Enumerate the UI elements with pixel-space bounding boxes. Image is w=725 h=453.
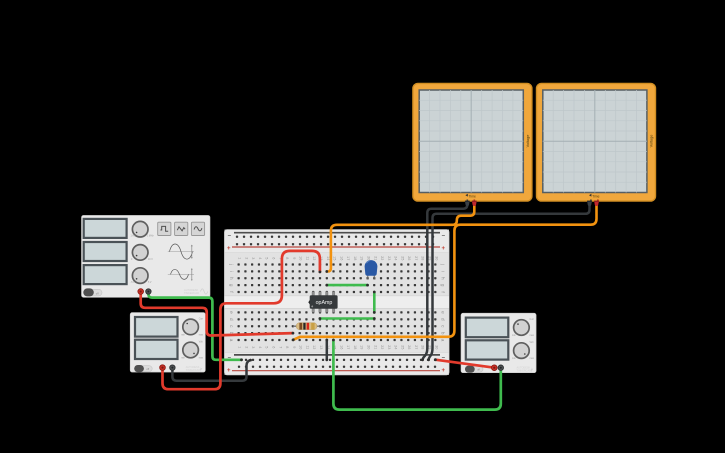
svg-text:e: e	[228, 311, 233, 314]
svg-text:16: 16	[339, 256, 343, 260]
svg-text:26: 26	[407, 345, 411, 349]
svg-text:15: 15	[333, 256, 337, 260]
svg-text:4: 4	[258, 346, 262, 348]
svg-text:g: g	[439, 284, 444, 287]
svg-text:b: b	[439, 332, 445, 335]
svg-text:1: 1	[238, 346, 242, 348]
svg-text:j: j	[439, 263, 445, 265]
svg-text:TINKERCAD: TINKERCAD	[186, 369, 201, 372]
svg-text:27: 27	[414, 345, 418, 349]
svg-text:5 V: 5 V	[148, 282, 152, 284]
svg-text:30: 30	[434, 345, 438, 349]
svg-text:1: 1	[238, 257, 242, 259]
svg-text:5: 5	[265, 257, 269, 259]
svg-text:16: 16	[339, 345, 343, 349]
svg-text:opAmp: opAmp	[316, 300, 333, 306]
svg-text:25: 25	[400, 345, 404, 349]
svg-text:1 MHz: 1 MHz	[147, 236, 154, 238]
svg-text:Time: Time	[469, 195, 477, 199]
svg-text:Voltage: Voltage	[526, 135, 530, 148]
svg-text:23: 23	[387, 345, 391, 349]
svg-text:20: 20	[367, 345, 371, 349]
svg-text:3: 3	[251, 257, 255, 259]
svg-text:27: 27	[414, 256, 418, 260]
svg-text:18: 18	[353, 345, 357, 349]
svg-text:2: 2	[244, 346, 248, 348]
svg-text:24: 24	[394, 256, 398, 260]
svg-text:e: e	[439, 311, 444, 314]
svg-text:d: d	[228, 318, 234, 321]
svg-text:30: 30	[434, 256, 438, 260]
svg-text:18: 18	[353, 256, 357, 260]
svg-text:14: 14	[326, 256, 330, 260]
svg-text:a: a	[439, 339, 444, 342]
svg-text:12: 12	[312, 345, 316, 349]
svg-text:+: +	[442, 368, 446, 374]
svg-text:−: −	[442, 233, 446, 239]
svg-text:17: 17	[346, 256, 350, 260]
svg-text:7: 7	[278, 346, 282, 348]
svg-text:Time: Time	[592, 195, 600, 199]
svg-text:h: h	[439, 277, 445, 280]
svg-text:off: off	[96, 291, 99, 295]
svg-text:Volt: Volt	[530, 341, 534, 344]
svg-text:28: 28	[421, 345, 425, 349]
svg-text:off: off	[146, 368, 149, 371]
svg-text:9: 9	[292, 257, 296, 259]
svg-text:-5 V: -5 V	[131, 282, 136, 284]
svg-text:5: 5	[265, 346, 269, 348]
svg-text:4: 4	[258, 257, 262, 259]
svg-text:g: g	[228, 284, 233, 287]
svg-text:−: −	[228, 233, 232, 239]
svg-text:Volt: Volt	[199, 341, 203, 344]
svg-text:21: 21	[373, 345, 377, 349]
svg-text:+: +	[227, 246, 231, 252]
svg-text:26: 26	[407, 256, 411, 260]
svg-text:i: i	[228, 271, 234, 272]
svg-text:h: h	[228, 277, 234, 280]
svg-text:off: off	[477, 369, 480, 372]
svg-text:19: 19	[360, 256, 364, 260]
svg-text:i: i	[439, 271, 445, 272]
svg-text:Curr: Curr	[530, 318, 535, 321]
svg-text:6: 6	[272, 257, 276, 259]
svg-text:22: 22	[380, 256, 384, 260]
svg-text:Curr: Curr	[199, 318, 204, 321]
svg-text:12: 12	[312, 256, 316, 260]
svg-text:+: +	[442, 246, 446, 252]
svg-text:21: 21	[373, 256, 377, 260]
svg-text:Voltage: Voltage	[649, 135, 653, 148]
svg-text:+: +	[227, 368, 231, 374]
svg-text:10: 10	[299, 345, 303, 349]
svg-text:19: 19	[360, 345, 364, 349]
svg-text:TINKERCAD: TINKERCAD	[517, 370, 532, 373]
svg-text:10 V: 10 V	[148, 259, 153, 261]
svg-text:j: j	[228, 263, 234, 265]
svg-text:13: 13	[319, 345, 323, 349]
svg-text:11: 11	[305, 256, 309, 260]
svg-text:28: 28	[421, 256, 425, 260]
svg-text:20: 20	[367, 256, 371, 260]
svg-text:17: 17	[346, 345, 350, 349]
svg-text:23: 23	[387, 256, 391, 260]
svg-text:11: 11	[305, 345, 309, 349]
svg-text:6: 6	[272, 346, 276, 348]
svg-text:10: 10	[299, 256, 303, 260]
svg-text:d: d	[439, 318, 445, 321]
svg-text:a: a	[228, 339, 233, 342]
svg-text:24: 24	[394, 345, 398, 349]
svg-text:3: 3	[251, 346, 255, 348]
svg-text:25: 25	[400, 256, 404, 260]
svg-text:8: 8	[285, 257, 289, 259]
svg-text:TINKERCAD: TINKERCAD	[184, 291, 199, 295]
svg-text:2: 2	[244, 257, 248, 259]
svg-text:8: 8	[285, 346, 289, 348]
svg-text:9: 9	[292, 346, 296, 348]
svg-text:22: 22	[380, 345, 384, 349]
